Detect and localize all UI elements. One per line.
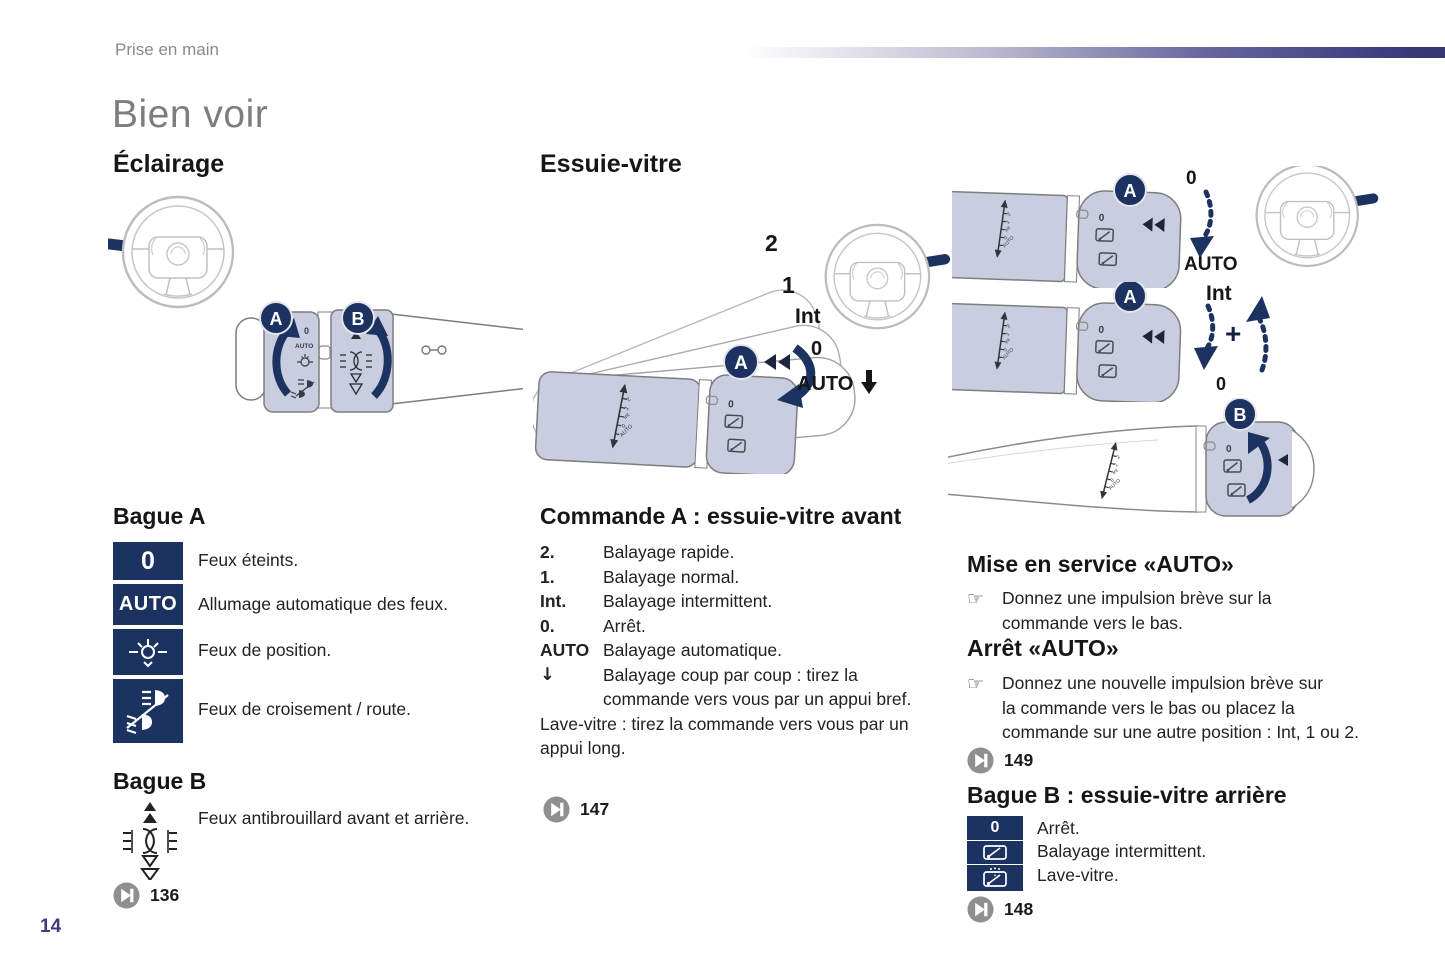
section-heading-lighting: Éclairage <box>113 150 224 179</box>
lights-off-symbol: 0 <box>141 547 155 576</box>
steering-wheel-icon <box>108 197 233 307</box>
term-pull-arrow: ↓ <box>540 663 555 688</box>
wiper-stalk-illustration: 2 1 Int 0 AUTO 0 A <box>533 222 955 474</box>
breadcrumb: Prise en main <box>115 40 219 60</box>
badge-a: A <box>260 302 292 334</box>
page-ref-number: 149 <box>1004 750 1033 771</box>
badge-a: A <box>1114 282 1146 312</box>
rear-wiper-intermittent-icon <box>967 841 1023 864</box>
auto-on-label-0: 0 <box>1186 168 1197 190</box>
svg-text:B: B <box>352 309 365 329</box>
term-1: 1. <box>540 565 555 590</box>
ring-a-heading: Bague A <box>113 503 205 530</box>
auto-off-label-plus: + <box>1225 318 1241 350</box>
auto-on-illustration: 2 1 Int 0 AUTO 0 A <box>952 166 1394 288</box>
position-label-int: Int <box>795 305 821 329</box>
auto-off-heading: Arrêt «AUTO» <box>967 635 1119 662</box>
fog-lights-label: Feux antibrouillard avant et arrière. <box>198 806 469 831</box>
auto-on-text: Donnez une impulsion brève sur la comman… <box>1002 586 1271 635</box>
lighting-stalk-illustration: 0 AUTO <box>108 192 523 442</box>
low-high-beam-icon <box>113 679 183 743</box>
auto-off-label-int: Int <box>1206 282 1232 306</box>
rear-wiper-ring-figure: 2 1 Int 0 AUTO 0 <box>948 398 1408 538</box>
term-2: 2. <box>540 540 555 565</box>
page-ref-icon <box>543 796 570 823</box>
desc-int: Balayage intermittent. <box>603 589 772 614</box>
badge-b: B <box>342 302 374 334</box>
section-heading-wiper: Essuie-vitre <box>540 150 682 179</box>
svg-text:0: 0 <box>1098 325 1104 336</box>
wiper-stalk-body: 2 1 Int 0 AUTO 0 <box>948 422 1314 516</box>
page-ref-number: 148 <box>1004 899 1033 920</box>
washer-note: Lave-vitre : tirez la commande vers vous… <box>540 712 909 761</box>
auto-off-figure: 2 1 Int 0 AUTO 0 A <box>952 282 1394 402</box>
position-label-1: 1 <box>782 272 795 299</box>
svg-text:A: A <box>270 309 283 329</box>
desc-2: Balayage rapide. <box>603 540 734 565</box>
rear-wiper-off-label: Arrêt. <box>1037 816 1080 841</box>
command-a-heading: Commande A : essuie-vitre avant <box>540 503 901 530</box>
rear-wiper-ring-illustration: 2 1 Int 0 AUTO 0 <box>948 398 1408 538</box>
desc-auto: Balayage automatique. <box>603 638 782 663</box>
badge-a: A <box>1114 174 1146 206</box>
low-high-beam-label: Feux de croisement / route. <box>198 697 411 722</box>
rear-wiper-heading: Bague B : essuie-vitre arrière <box>967 782 1287 809</box>
page-ref-icon <box>967 747 994 774</box>
page-number: 14 <box>40 916 61 938</box>
manual-page: Prise en main Bien voir Éclairage Essuie… <box>0 0 1445 964</box>
auto-lights-label: Allumage automatique des feux. <box>198 592 448 617</box>
rear-wiper-off-symbol: 0 <box>991 819 1000 837</box>
lights-off-label: Feux éteints. <box>198 548 298 573</box>
impulse-down-arrow <box>1190 192 1214 258</box>
page-ref-icon <box>967 896 994 923</box>
auto-off-label-0: 0 <box>1216 374 1226 395</box>
wiper-stalk-body: 2 1 Int 0 AUTO 0 <box>533 365 798 474</box>
auto-down-arrow-icon <box>861 370 877 394</box>
badge-b: B <box>1224 398 1256 430</box>
svg-text:AUTO: AUTO <box>295 343 313 350</box>
page-title: Bien voir <box>112 93 268 137</box>
svg-text:0: 0 <box>728 399 735 410</box>
steering-wheel-icon <box>826 225 951 328</box>
svg-text:0: 0 <box>304 326 309 336</box>
header-gradient-bar <box>745 47 1445 58</box>
page-reference: 149 <box>967 747 1033 774</box>
svg-text:A: A <box>1124 287 1137 307</box>
svg-text:0: 0 <box>1099 213 1105 224</box>
page-ref-number: 147 <box>580 799 609 820</box>
position-lights-icon <box>113 629 183 675</box>
ring-b-heading: Bague B <box>113 768 206 795</box>
term-0: 0. <box>540 614 555 639</box>
wiper-stalk-body: 2 1 Int 0 AUTO 0 <box>952 297 1181 402</box>
impulse-up-arrow <box>1246 296 1270 370</box>
position-label-0: 0 <box>811 338 822 361</box>
position-lights-label: Feux de position. <box>198 638 331 663</box>
page-reference: 147 <box>543 796 609 823</box>
fog-lights-icon <box>113 800 185 880</box>
svg-text:0: 0 <box>1226 444 1232 455</box>
pointing-hand-icon: ☞ <box>967 588 984 610</box>
page-ref-icon <box>113 882 140 909</box>
desc-pull: Balayage coup par coup : tirez la comman… <box>603 663 911 712</box>
lights-off-icon: 0 <box>113 542 183 580</box>
auto-lights-icon: AUTO <box>113 584 183 625</box>
position-label-2: 2 <box>765 230 778 257</box>
rear-wiper-intermittent-label: Balayage intermittent. <box>1037 839 1206 864</box>
badge-a: A <box>724 345 758 379</box>
lighting-stalk-figure: 0 AUTO <box>108 192 523 442</box>
page-reference: 136 <box>113 882 179 909</box>
desc-0: Arrêt. <box>603 614 646 639</box>
svg-text:A: A <box>1124 181 1137 201</box>
term-auto: AUTO <box>540 638 589 663</box>
auto-on-label-auto: AUTO <box>1184 254 1237 276</box>
auto-on-heading: Mise en service «AUTO» <box>967 551 1234 578</box>
svg-text:B: B <box>1234 405 1247 425</box>
impulse-down-arrow <box>1194 306 1218 370</box>
pointing-hand-icon: ☞ <box>967 673 984 695</box>
page-reference: 148 <box>967 896 1033 923</box>
steering-wheel-icon <box>1257 166 1379 266</box>
svg-text:A: A <box>734 353 748 374</box>
auto-lights-symbol: AUTO <box>119 593 177 616</box>
rear-washer-label: Lave-vitre. <box>1037 863 1119 888</box>
auto-on-figure: 2 1 Int 0 AUTO 0 A <box>952 166 1394 288</box>
desc-1: Balayage normal. <box>603 565 739 590</box>
rear-wiper-off-icon: 0 <box>967 816 1023 840</box>
term-int: Int. <box>540 589 566 614</box>
auto-off-illustration: 2 1 Int 0 AUTO 0 A <box>952 282 1394 402</box>
wiper-stalk-body: 2 1 Int 0 AUTO 0 <box>952 185 1182 288</box>
rear-washer-icon <box>967 865 1023 891</box>
wiper-stalk-figure: 2 1 Int 0 AUTO 0 A <box>533 222 955 474</box>
position-label-auto: AUTO <box>797 373 853 396</box>
auto-off-text: Donnez une nouvelle impulsion brève sur … <box>1002 671 1359 745</box>
page-ref-number: 136 <box>150 885 179 906</box>
